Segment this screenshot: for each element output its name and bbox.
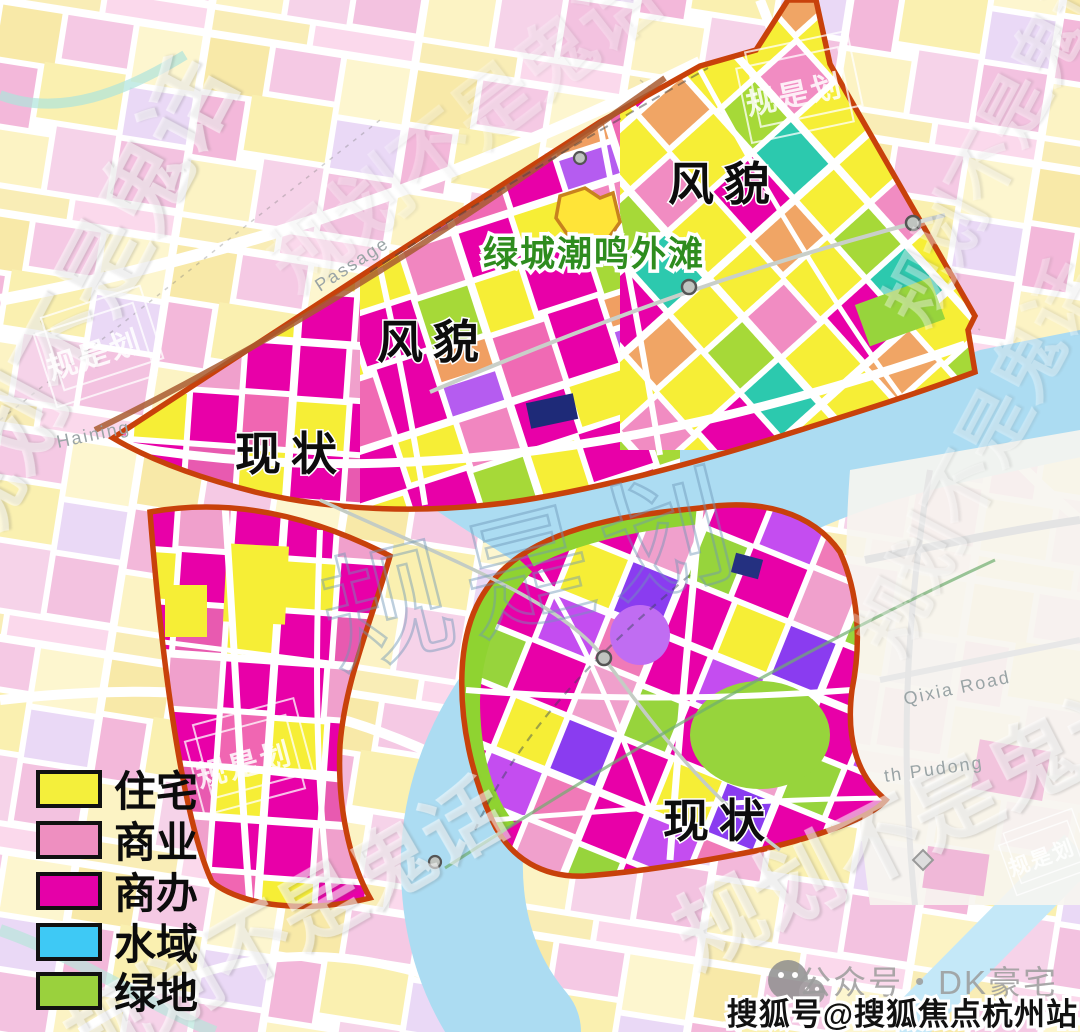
legend-label-water: 水域 <box>114 921 198 968</box>
wechat-account-text: 公众号・DK豪宅 <box>798 964 1058 1001</box>
legend-label-green-space: 绿地 <box>114 970 198 1017</box>
label-fengmao-northeast: 风貌 <box>668 158 780 210</box>
legend-swatch-business-office <box>38 874 100 908</box>
legend-item-water: 水域 <box>38 921 198 968</box>
label-fengmao-center: 风貌 <box>377 316 489 368</box>
sohu-account-text: 搜狐号@搜狐焦点杭州站 <box>727 997 1078 1032</box>
legend-swatch-commercial <box>38 823 100 857</box>
planning-map: 规划不是鬼话 规划不是鬼话 规划不是鬼话 规划不是鬼话 规划不是鬼话 规划不是鬼… <box>0 0 1080 1032</box>
label-xianzhuang-southeast: 现状 <box>663 795 775 847</box>
legend-item-commercial: 商业 <box>38 819 198 866</box>
legend-swatch-residential <box>38 772 100 806</box>
legend-label-residential: 住宅 <box>114 768 198 815</box>
legend-swatch-green-space <box>38 974 100 1008</box>
legend-swatch-water <box>38 925 100 959</box>
legend: 住宅 商业 商办 水域 绿地 <box>38 768 198 1017</box>
legend-item-business-office: 商办 <box>38 870 198 917</box>
legend-label-commercial: 商业 <box>114 819 198 866</box>
project-label: 绿城潮鸣外滩 <box>483 235 705 274</box>
legend-item-green-space: 绿地 <box>38 970 198 1017</box>
label-xianzhuang-west: 现状 <box>235 428 347 480</box>
legend-item-residential: 住宅 <box>38 768 198 815</box>
footer-attribution: 公众号・DK豪宅 搜狐号@搜狐焦点杭州站 搜狐号@搜狐焦点杭州站 <box>727 960 1078 1032</box>
planning-map-screenshot: 规划不是鬼话 规划不是鬼话 规划不是鬼话 规划不是鬼话 规划不是鬼话 规划不是鬼… <box>0 0 1080 1032</box>
legend-label-business-office: 商办 <box>114 870 198 917</box>
